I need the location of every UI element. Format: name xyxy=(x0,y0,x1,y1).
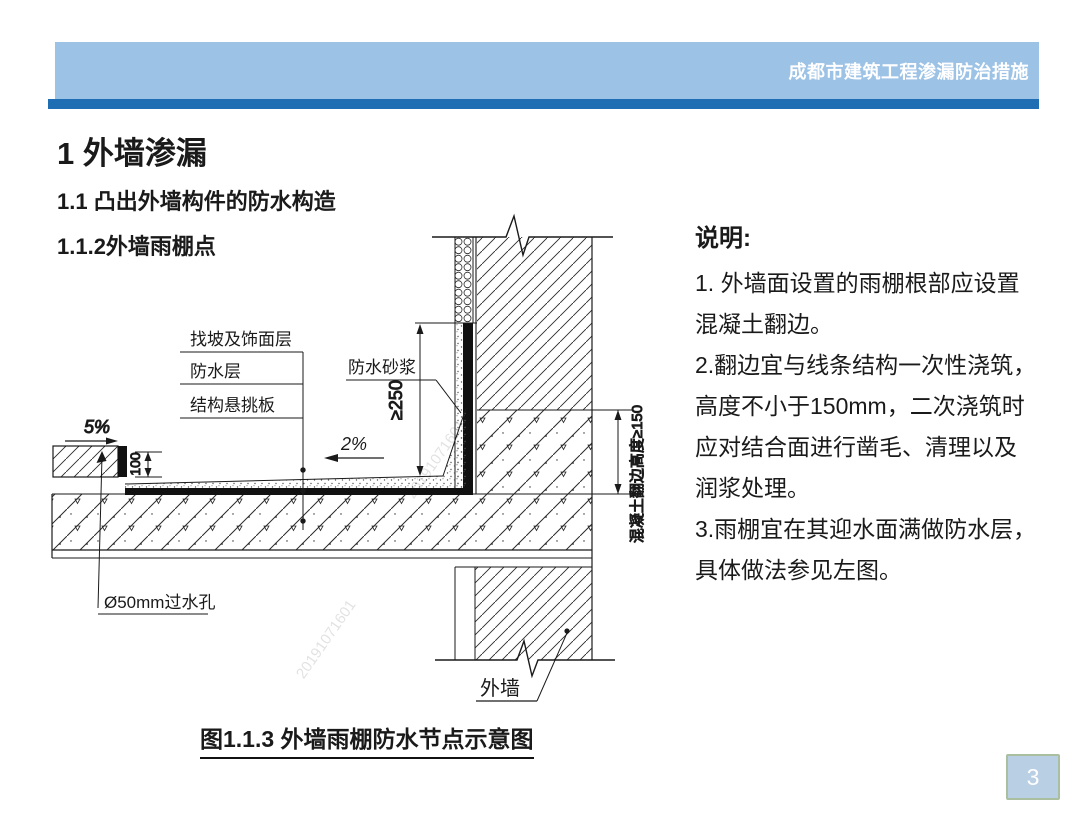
figure-caption: 图1.1.3 外墙雨棚防水节点示意图 xyxy=(200,720,534,759)
header-title: 成都市建筑工程渗漏防治措施 xyxy=(789,58,1030,84)
slope-label-5: 5% xyxy=(84,417,110,437)
note-line: 高度不小于150mm，二次浇筑时 xyxy=(695,386,1065,427)
page-number-badge: 3 xyxy=(1006,754,1060,800)
exterior-wall-label: 外墙 xyxy=(480,677,520,700)
heading-section: 1 外墙渗漏 xyxy=(57,128,207,173)
layer-slab-label: 结构悬挑板 xyxy=(190,396,275,415)
canopy-slab xyxy=(52,494,632,558)
waterproof-membrane xyxy=(125,488,473,495)
mortar-label: 防水砂浆 xyxy=(348,358,416,377)
notes-title: 说明: xyxy=(695,218,1065,253)
svg-text:20191071601: 20191071601 xyxy=(293,597,360,682)
dim-250-label: ≥250 xyxy=(386,380,406,420)
header-stripe xyxy=(48,99,1039,109)
slope-label-2: 2% xyxy=(340,434,367,454)
notes-panel: 说明: 1. 外墙面设置的雨棚根部应设置 混凝土翻边。 2.翻边宜与线条结构一次… xyxy=(695,218,1065,591)
note-line: 应对结合面进行凿毛、清理以及 xyxy=(695,427,1065,468)
upturn-dim-label: 混凝土翻边高度≥150 xyxy=(629,405,646,543)
note-line: 3.雨棚宜在其迎水面满做防水层， xyxy=(695,509,1065,550)
layer-screed-label: 找坡及饰面层 xyxy=(190,330,292,349)
dimension-100: 100 xyxy=(127,452,162,477)
dimension-250: ≥250 xyxy=(386,324,424,476)
canopy-waterproofing-detail-drawing: 20191071601 20191071601 xyxy=(40,212,680,722)
dimension-upturn-150: 混凝土翻边高度≥150 xyxy=(615,405,647,543)
note-line: 混凝土翻边。 xyxy=(695,304,1065,345)
note-line: 具体做法参见左图。 xyxy=(695,550,1065,591)
dim-100-label: 100 xyxy=(127,452,143,476)
screed-and-fillet xyxy=(125,408,473,495)
layer-waterproof-label: 防水层 xyxy=(190,362,241,381)
note-line: 1. 外墙面设置的雨棚根部应设置 xyxy=(695,263,1065,304)
weep-hole-label: Ø50mm过水孔 xyxy=(104,593,215,612)
note-line: 2.翻边宜与线条结构一次性浇筑， xyxy=(695,345,1065,386)
slope-2-percent: 2% xyxy=(324,434,384,462)
page-number: 3 xyxy=(1027,764,1040,791)
lower-wall xyxy=(435,567,615,676)
note-line: 润浆处理。 xyxy=(695,468,1065,509)
drip-curb: 5% xyxy=(53,417,127,477)
header-bar: 成都市建筑工程渗漏防治措施 xyxy=(55,42,1039,99)
